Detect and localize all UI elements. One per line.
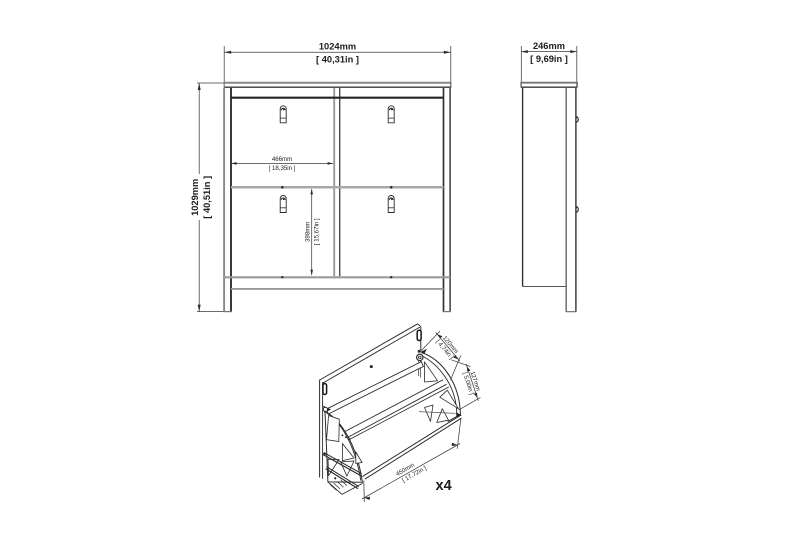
svg-text:466mm: 466mm	[272, 156, 292, 163]
svg-text:[ 40,51in ]: [ 40,51in ]	[202, 176, 212, 219]
svg-text:1029mm: 1029mm	[190, 179, 200, 216]
svg-text:[ 40,31in ]: [ 40,31in ]	[316, 55, 359, 65]
svg-text:[ 15,67in ]: [ 15,67in ]	[314, 218, 321, 245]
svg-text:398mm: 398mm	[305, 222, 312, 242]
svg-text:246mm: 246mm	[533, 41, 565, 51]
svg-text:[ 18,35in ]: [ 18,35in ]	[269, 165, 296, 172]
svg-text:1024mm: 1024mm	[319, 42, 356, 52]
svg-text:x4: x4	[436, 478, 452, 494]
svg-text:[ 9,69in ]: [ 9,69in ]	[530, 54, 568, 64]
